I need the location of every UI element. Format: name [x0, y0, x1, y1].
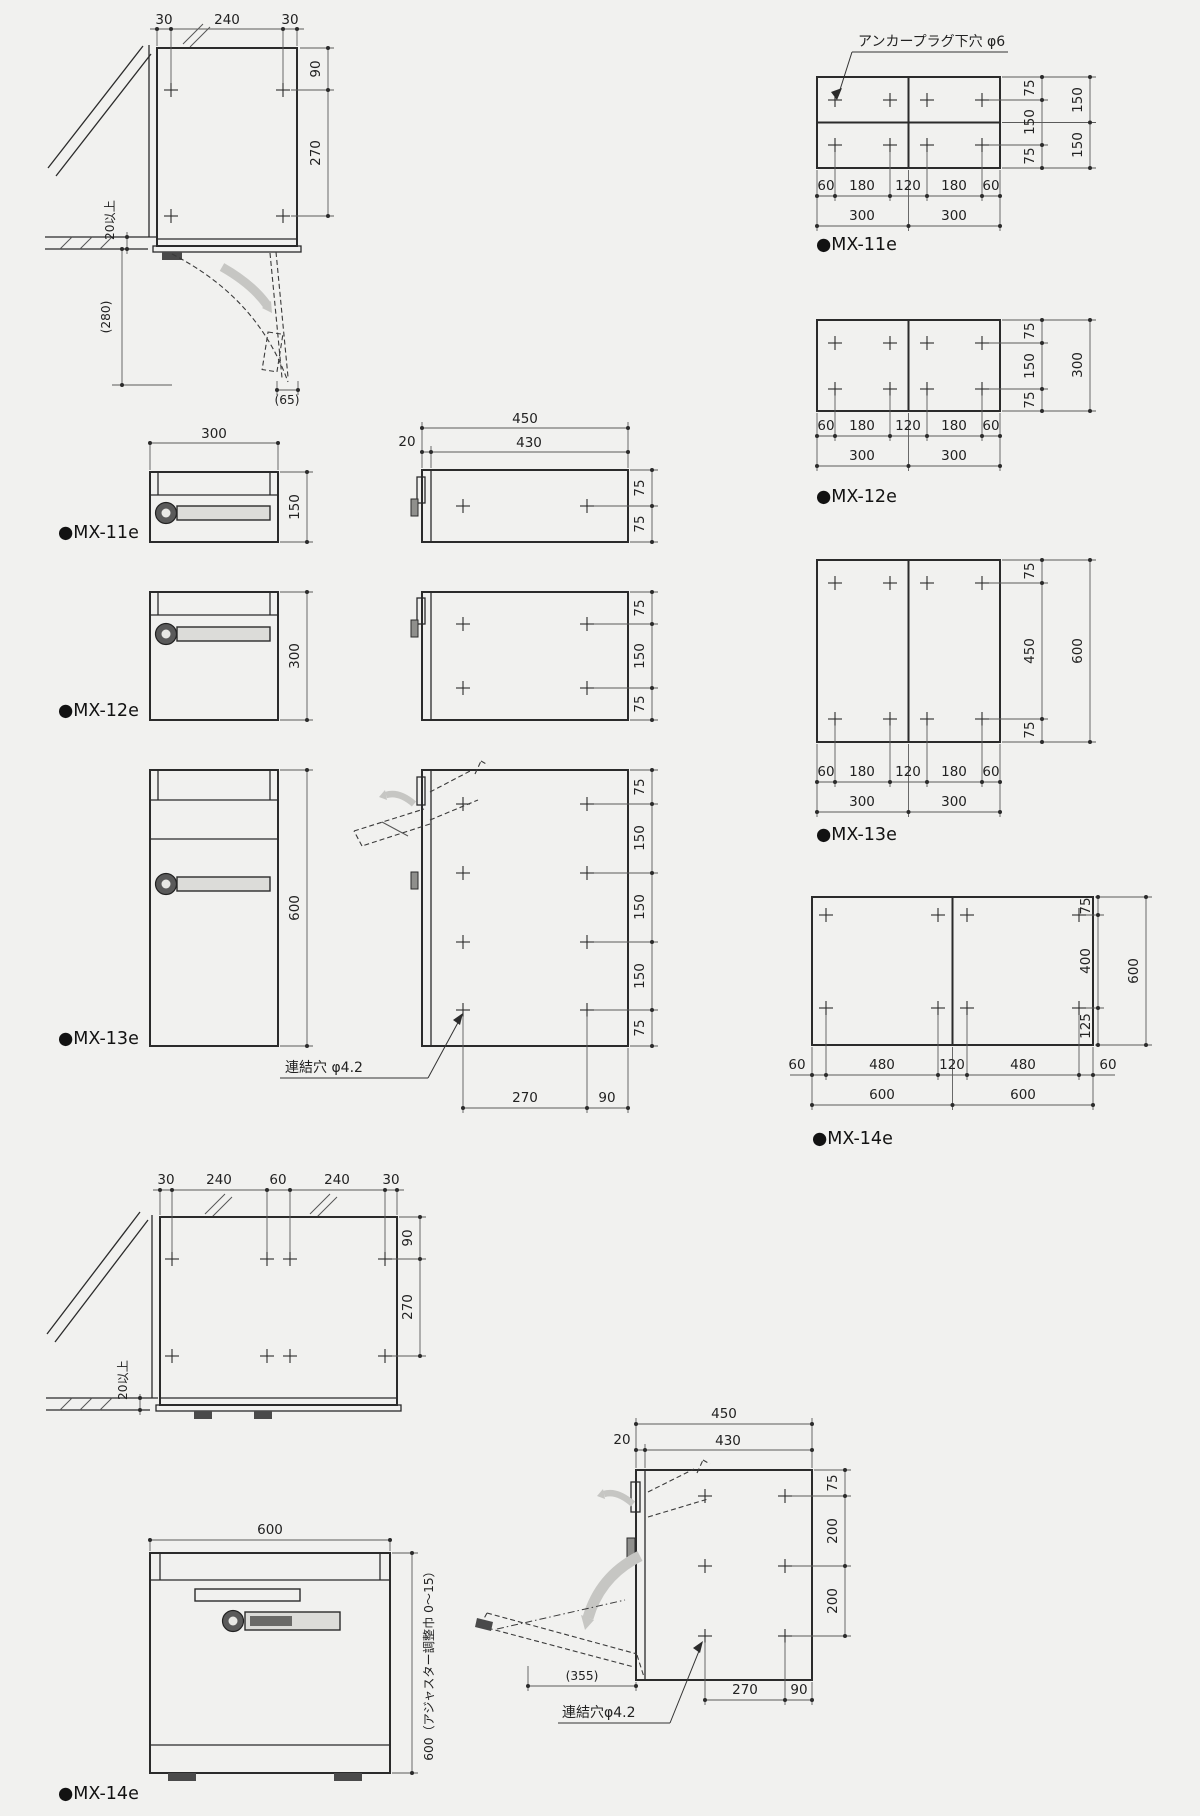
dim-label: 240: [206, 1172, 232, 1188]
dim-label: 300: [849, 208, 875, 224]
dim-label: 300: [201, 426, 227, 442]
dim-label: 600: [1126, 958, 1142, 984]
dim-label: 30: [382, 1172, 399, 1188]
dim-label: 180: [941, 178, 967, 194]
dim-label: 90: [308, 60, 324, 77]
dim-label: 75: [1022, 79, 1038, 96]
dim-label: 600: [287, 895, 303, 921]
dim-label: (355): [566, 1669, 599, 1683]
dim-label: 75: [632, 1019, 648, 1036]
dim-label: 270: [512, 1090, 538, 1106]
model-label-mx11e-view: ●MX-11e: [58, 523, 139, 543]
lock-knob: [411, 620, 418, 637]
dim-label: 300: [849, 448, 875, 464]
dim-label: 75: [632, 599, 648, 616]
handle-bar: [177, 627, 270, 641]
dim-label: 300: [941, 208, 967, 224]
hole-pattern-mx12e: 75 150 75 300 60 180 120 180 60 300 300 …: [815, 318, 1096, 507]
hole-pattern-mx14e: 75 400 125 600 60 480 120 480 60 600 600…: [788, 895, 1152, 1149]
dim-label: 75: [1022, 562, 1038, 579]
install-view-bottom: 30 240 60 240 30 90 270 20以上: [46, 1172, 426, 1419]
dim-label: 300: [1070, 352, 1086, 378]
dim-label: 270: [732, 1682, 758, 1698]
side-view-mx13e: 75 150 150 150 75 270 90 連結穴 φ4.2: [280, 761, 658, 1113]
dim-label: 90: [790, 1682, 807, 1698]
dim-label: 450: [512, 411, 538, 427]
adjuster-foot: [168, 1773, 196, 1781]
dim-label: 75: [632, 479, 648, 496]
dim-label: 150: [632, 825, 648, 851]
model-label-mx12e-view: ●MX-12e: [58, 701, 139, 721]
dim-label: 30: [281, 12, 298, 28]
dim-label: 430: [516, 435, 542, 451]
flap-open-arrow-icon: [604, 1493, 633, 1504]
dim-label: 60: [817, 764, 834, 780]
dim-label: 120: [939, 1057, 965, 1073]
front-view-mx11e: 300 150 ●MX-11e: [58, 426, 313, 544]
dim-label: 270: [400, 1294, 416, 1320]
dim-label: 30: [155, 12, 172, 28]
dim-label: 400: [1078, 948, 1094, 974]
front-view-mx14e: 600 600（アジャスター調整巾 0〜15） ●MX-14e: [58, 1522, 436, 1804]
dim-label: 120: [895, 764, 921, 780]
clearance-label: 20以上: [116, 1360, 130, 1400]
anchor-note: アンカープラグ下穴 φ6: [831, 34, 1008, 100]
dim-label: 75: [1022, 721, 1038, 738]
model-label-mx13e: ●MX-13e: [816, 825, 897, 845]
clearance-label: 20以上: [103, 200, 117, 240]
dim-label: 75: [632, 515, 648, 532]
dim-label: (65): [274, 393, 299, 407]
model-label-mx14e-pattern: ●MX-14e: [812, 1129, 893, 1149]
hole-pattern-mx13e: 75 450 75 600 60 180 120 180 60 300 300 …: [815, 558, 1096, 845]
dim-label: 60: [788, 1057, 805, 1073]
dim-label: 600: [869, 1087, 895, 1103]
dim-label: 60: [982, 418, 999, 434]
dim-label: 180: [849, 178, 875, 194]
front-view-mx12e: 300 ●MX-12e: [58, 590, 313, 722]
dim-label: 60: [817, 418, 834, 434]
link-hole-label: 連結穴φ4.2: [562, 1705, 636, 1721]
dim-label: 300: [849, 794, 875, 810]
dim-label: 60: [982, 178, 999, 194]
dim-label: 125: [1078, 1013, 1094, 1039]
dim-label: 30: [157, 1172, 174, 1188]
dim-label: 450: [711, 1406, 737, 1422]
dim-label: 200: [825, 1518, 841, 1544]
dim-label: 150: [632, 894, 648, 920]
dim-label: 180: [941, 418, 967, 434]
model-label-mx11e: ●MX-11e: [816, 235, 897, 255]
latch-foot: [194, 1411, 212, 1419]
side-view-mx11e: 450 20 430 75 75: [398, 411, 658, 544]
dim-label: 240: [324, 1172, 350, 1188]
dim-label: 300: [941, 794, 967, 810]
dim-label: 120: [895, 418, 921, 434]
dim-label: 600: [1010, 1087, 1036, 1103]
dim-label: 150: [287, 494, 303, 520]
dim-label: 300: [287, 643, 303, 669]
dim-label: (280): [99, 301, 113, 334]
dim-label: 600: [257, 1522, 283, 1538]
dim-label: 150: [632, 963, 648, 989]
dim-label: 480: [869, 1057, 895, 1073]
adjuster-foot: [334, 1773, 362, 1781]
dim-label: 75: [1022, 391, 1038, 408]
dim-label: 180: [849, 418, 875, 434]
dim-label: 60: [269, 1172, 286, 1188]
mailbox-installation-drawing: 30 240 30 90 270 20以上 (280) (65) アンカープラグ…: [0, 0, 1200, 1816]
open-door-outline: [262, 332, 283, 372]
dim-label: 75: [632, 695, 648, 712]
dim-label: 75: [1022, 147, 1038, 164]
dim-label: 600: [1070, 638, 1086, 664]
front-view-mx13e: 600 ●MX-13e: [58, 768, 313, 1049]
dim-label: 90: [598, 1090, 615, 1106]
dim-label: 60: [982, 764, 999, 780]
side-view-mx14e: 450 20 430 (355) 75 200 200 270 90 連結穴φ4…: [475, 1406, 851, 1723]
dim-label: 75: [632, 778, 648, 795]
dim-label: 60: [1099, 1057, 1116, 1073]
dim-label: 75: [1022, 322, 1038, 339]
dim-label: 430: [715, 1433, 741, 1449]
dim-label: 20: [613, 1432, 630, 1448]
adjuster-label: 600（アジャスター調整巾 0〜15）: [421, 1565, 436, 1761]
handle-bar: [177, 506, 270, 520]
model-label-mx14e-view: ●MX-14e: [58, 1784, 139, 1804]
dim-label: 450: [1022, 638, 1038, 664]
dim-label: 480: [1010, 1057, 1036, 1073]
dim-label: 150: [1022, 353, 1038, 379]
link-hole-label: 連結穴 φ4.2: [285, 1060, 363, 1076]
dim-label: 150: [1070, 87, 1086, 113]
handle-bar: [177, 877, 270, 891]
dim-label: 75: [1078, 897, 1094, 914]
model-label-mx13e-view: ●MX-13e: [58, 1029, 139, 1049]
lock-knob: [411, 499, 418, 516]
lock-knob: [411, 872, 418, 889]
dim-label: 75: [825, 1474, 841, 1491]
latch-foot: [254, 1411, 272, 1419]
dim-label: 90: [400, 1229, 416, 1246]
model-label-mx12e: ●MX-12e: [816, 487, 897, 507]
latch-foot: [162, 252, 182, 260]
dim-label: 150: [1070, 132, 1086, 158]
door-swing-arrow-icon: [588, 1556, 640, 1618]
handle-latch: [250, 1616, 292, 1626]
dim-label: 300: [941, 448, 967, 464]
flap-open-arrow-icon: [386, 794, 414, 804]
dim-label: 180: [941, 764, 967, 780]
door-hinge: [475, 1618, 493, 1631]
side-view-mx12e: 75 150 75: [411, 590, 658, 722]
mail-slot: [195, 1589, 300, 1601]
dim-label: 270: [308, 140, 324, 166]
dim-label: 150: [632, 643, 648, 669]
door-swing-arrow-icon: [222, 267, 267, 305]
drawing-canvas: 30 240 30 90 270 20以上 (280) (65) アンカープラグ…: [0, 0, 1200, 1816]
anchor-note-label: アンカープラグ下穴 φ6: [858, 34, 1005, 50]
hole-pattern-mx11e: 75 150 75 150 150 60 180 120 180 60 300 …: [815, 75, 1096, 255]
dim-label: 200: [825, 1588, 841, 1614]
dim-label: 120: [895, 178, 921, 194]
dim-label: 20: [398, 434, 415, 450]
dim-label: 60: [817, 178, 834, 194]
dim-label: 180: [849, 764, 875, 780]
dim-label: 150: [1022, 109, 1038, 135]
install-view-top: 30 240 30 90 270 20以上 (280) (65): [45, 12, 334, 407]
dim-label: 240: [214, 12, 240, 28]
